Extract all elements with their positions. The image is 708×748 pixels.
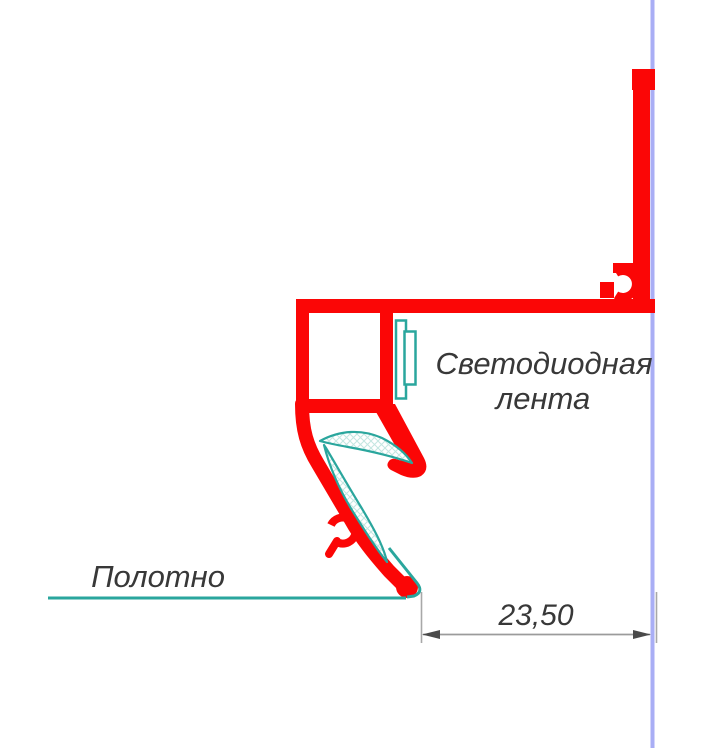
fabric-label: Полотно — [91, 559, 225, 594]
profile-drawing-canvas: 23,50 Светодиодная лента Полотно — [0, 0, 708, 748]
screw-boss-upper-ring — [616, 271, 636, 297]
profile-cross-section-diagram: 23,50 Светодиодная лента Полотно — [0, 0, 708, 748]
dimension-arrow-right-icon — [633, 630, 651, 639]
aluminum-profile — [296, 69, 655, 598]
led-strip-label-line1: Светодиодная — [435, 346, 652, 381]
dimension-arrow-left-icon — [422, 630, 440, 639]
led-strip-label-line2: лента — [494, 381, 591, 416]
screw-boss-lower-flare — [329, 541, 337, 554]
led-strip-body — [405, 332, 416, 385]
screw-boss-lower — [329, 518, 356, 554]
profile-box-right-wall — [380, 313, 393, 405]
screw-boss-upper-block — [600, 282, 614, 298]
profile-ceiling-bar — [296, 299, 655, 313]
dimension-text: 23,50 — [497, 599, 573, 632]
profile-box — [296, 301, 393, 413]
led-strip-bracket — [396, 321, 416, 399]
profile-box-left-wall — [296, 301, 309, 404]
screw-boss-upper — [600, 263, 636, 298]
dimension-group: 23,50 — [422, 592, 657, 643]
teal-elements — [48, 321, 420, 599]
